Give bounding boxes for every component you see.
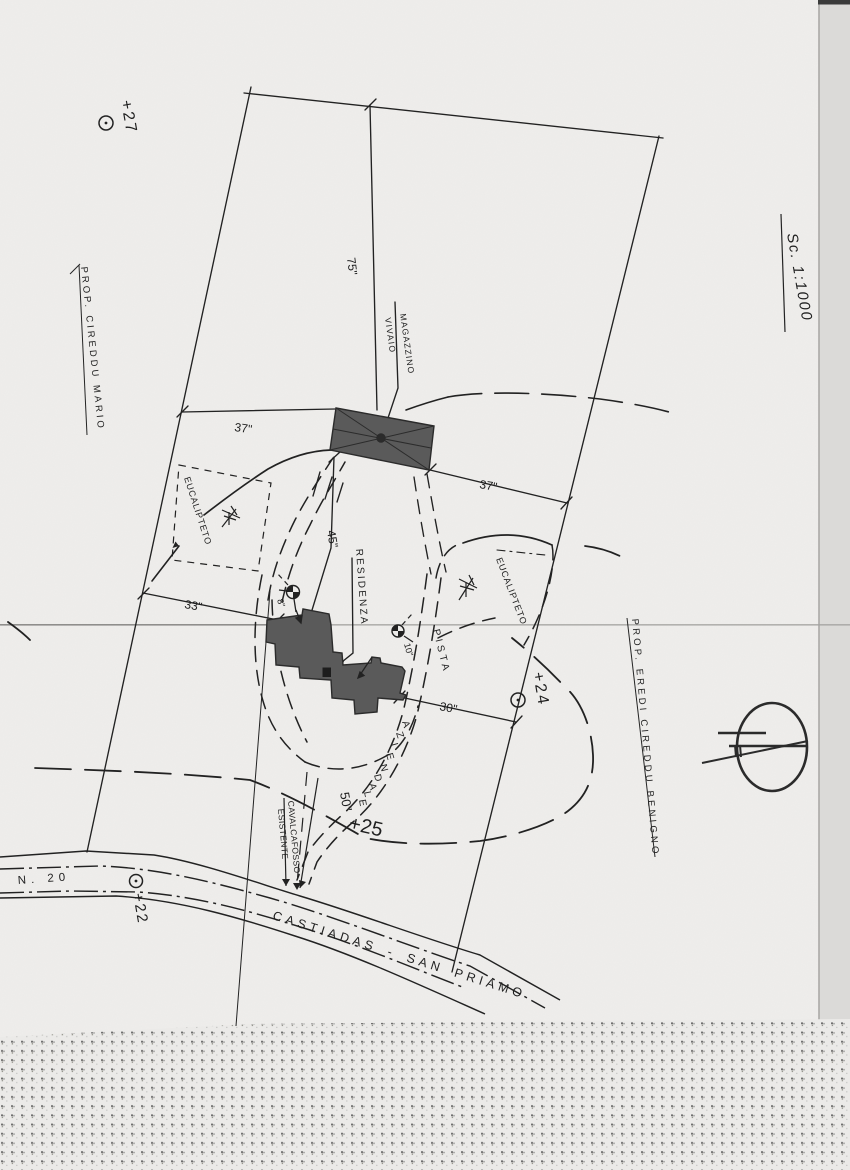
svg-text:37": 37"	[234, 420, 253, 436]
svg-text:75": 75"	[344, 257, 360, 276]
